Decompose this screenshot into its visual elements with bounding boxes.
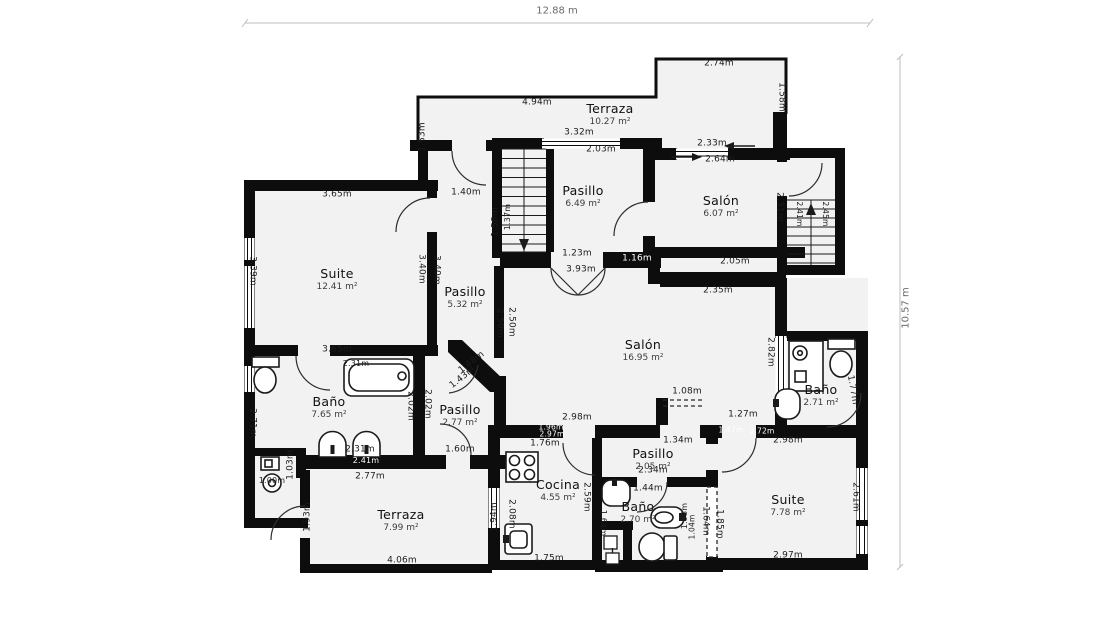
dim-label: 2.98m	[773, 437, 803, 446]
dim-label: 3.40m	[432, 255, 441, 285]
dim-label: 2.50m	[507, 307, 516, 337]
dim-label: 1.16m	[622, 255, 652, 264]
room-label-saln: Salón16.95 m²	[622, 337, 663, 363]
dim-label: 1.85m	[715, 509, 724, 539]
dim-label: 2.72m	[749, 427, 774, 435]
dim-label: 1.23m	[562, 250, 592, 259]
dim-label: 2.71m	[248, 408, 257, 438]
room-name: Suite	[316, 266, 357, 281]
dim-label: 2.41m	[353, 457, 380, 465]
dim-label: 2.97m	[539, 430, 564, 438]
dim-label: 1.93m	[304, 502, 313, 532]
room-name: Terraza	[377, 507, 424, 522]
room-name: Cocina	[536, 477, 580, 492]
room-name: Pasillo	[444, 284, 485, 299]
dim-label: 1.75m	[534, 555, 564, 564]
room-label-suite: Suite7.78 m²	[770, 492, 805, 518]
dim-label: 1.76m	[530, 440, 560, 449]
room-name: Salón	[622, 337, 663, 352]
dim-label: 2.45m	[821, 201, 829, 226]
room-area: 2.71 m²	[803, 398, 838, 408]
dim-label: 1.27m	[728, 411, 758, 420]
room-area: 16.95 m²	[622, 353, 663, 363]
dim-label: 2.77m	[355, 473, 385, 482]
dim-label: 2.59m	[582, 482, 591, 512]
dim-label: 2.31m	[345, 446, 375, 455]
dim-label: 2.41m	[795, 201, 803, 226]
room-name: Baño	[620, 499, 655, 514]
dim-label: 2.97m	[773, 552, 803, 561]
dim-label: 2.05m	[720, 258, 750, 267]
room-area: 10.27 m²	[586, 117, 633, 127]
room-name: Baño	[803, 382, 838, 397]
dim-label: 1.77m	[845, 375, 859, 406]
dim-label: 1.00m	[259, 477, 286, 485]
dim-label: 1.08m	[672, 388, 702, 397]
room-area: 7.78 m²	[770, 508, 805, 518]
dim-label: 1.44m	[633, 485, 663, 494]
dim-label: 2.61m	[851, 482, 860, 512]
dim-label: 2.02m	[423, 389, 432, 419]
overall-height-label: 10.57 m	[901, 287, 912, 329]
dim-label: 2.31m	[775, 192, 784, 222]
dim-label: 2.02m	[406, 391, 415, 421]
room-label-cocina: Cocina4.55 m²	[536, 477, 580, 503]
dim-label: 1.03m	[287, 450, 296, 480]
room-area: 7.99 m²	[377, 523, 424, 533]
room-area: 12.41 m²	[316, 282, 357, 292]
room-area: 2.05 m²	[632, 462, 673, 472]
room-label-saln: Salón6.07 m²	[703, 193, 739, 219]
dim-label: 1.37m	[504, 204, 512, 231]
dim-label: 4.06m	[387, 557, 417, 566]
room-label-pasillo: Pasillo6.49 m²	[562, 183, 603, 209]
dim-label: 1.04m	[688, 514, 696, 539]
room-name: Salón	[703, 193, 739, 208]
dim-label: 2.08m	[507, 499, 516, 529]
dim-label: 2.31m	[343, 360, 370, 368]
dim-label: 1.64m	[599, 510, 607, 537]
dim-label: 1.94m	[491, 502, 500, 532]
dim-label: 1.53m	[419, 122, 428, 152]
room-label-terraza: Terraza7.99 m²	[377, 507, 424, 533]
dim-label: 3.40m	[417, 254, 426, 284]
dim-label: 2.82m	[766, 337, 775, 367]
room-label-pasillo: Pasillo2.05 m²	[632, 446, 673, 472]
dim-label: 3.65m	[322, 191, 352, 200]
dim-label: 2.64m	[705, 156, 735, 165]
room-name: Pasillo	[439, 402, 480, 417]
room-area: 6.49 m²	[562, 199, 603, 209]
dim-label: 3.65m	[322, 346, 352, 355]
room-label-pasillo: Pasillo2.77 m²	[439, 402, 480, 428]
dim-label: 2.35m	[703, 287, 733, 296]
dim-label: 1.40m	[451, 189, 481, 198]
dim-label: 1.47m	[718, 426, 743, 434]
room-area: 6.07 m²	[703, 209, 739, 219]
floor-plan-canvas: 2.74m4.94m1.53m1.58m3.32m2.03m2.33m2.64m…	[0, 0, 1110, 626]
room-name: Pasillo	[632, 446, 673, 461]
room-area: 5.32 m²	[444, 300, 485, 310]
room-name: Terraza	[586, 101, 633, 116]
dim-label: 3.39m	[248, 256, 257, 286]
dim-label: 1.58m	[777, 82, 786, 112]
dim-label: 1.60m	[445, 446, 475, 455]
room-area: 7.65 m²	[311, 410, 346, 420]
dim-label: 2.33m	[697, 140, 727, 149]
room-label-suite: Suite12.41 m²	[316, 266, 357, 292]
room-area: 2.70 m²	[620, 515, 655, 525]
room-name: Suite	[770, 492, 805, 507]
room-area: 2.77 m²	[439, 418, 480, 428]
dim-label: 2.50m	[495, 308, 504, 338]
room-label-pasillo: Pasillo5.32 m²	[444, 284, 485, 310]
dim-label: 3.32m	[564, 129, 594, 138]
room-name: Baño	[311, 394, 346, 409]
dim-label: 1.64m	[701, 506, 710, 536]
room-label-bao: Baño7.65 m²	[311, 394, 346, 420]
room-name: Pasillo	[562, 183, 603, 198]
dim-label: 1.58m	[492, 207, 501, 237]
dim-label: 2.74m	[704, 60, 734, 69]
dim-label: 1.34m	[663, 437, 693, 446]
dim-label: 3.93m	[566, 266, 596, 275]
dim-label: 2.03m	[586, 146, 616, 155]
room-area: 4.55 m²	[536, 493, 580, 503]
room-label-terraza: Terraza10.27 m²	[586, 101, 633, 127]
room-label-bao: Baño2.71 m²	[803, 382, 838, 408]
labels-layer: 2.74m4.94m1.53m1.58m3.32m2.03m2.33m2.64m…	[0, 0, 1110, 626]
dim-label: 2.98m	[562, 414, 592, 423]
dim-label: 4.94m	[522, 99, 552, 108]
room-label-bao: Baño2.70 m²	[620, 499, 655, 525]
overall-width-label: 12.88 m	[536, 6, 578, 17]
